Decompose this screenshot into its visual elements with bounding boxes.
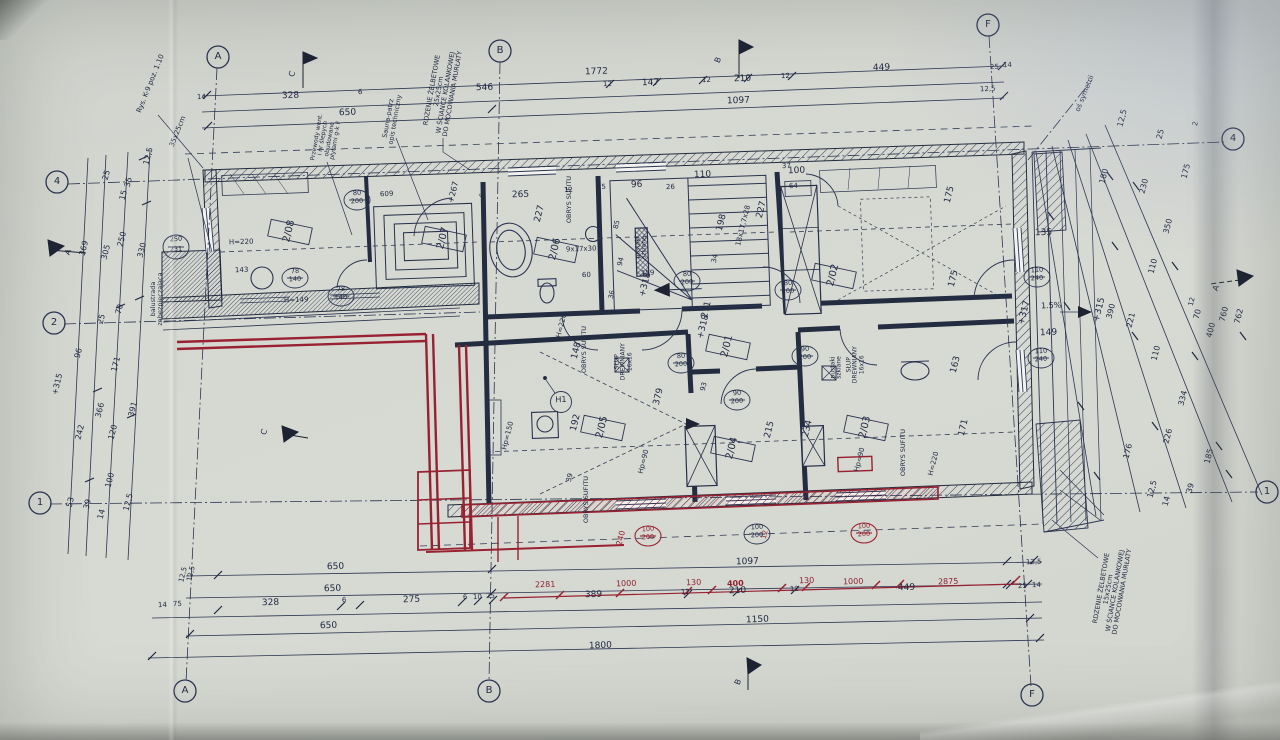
door-size-label: 200 bbox=[678, 279, 696, 287]
dim-label: 328 bbox=[262, 599, 280, 609]
window-size-label: 240 bbox=[1028, 275, 1046, 283]
dim-label: 449 bbox=[898, 584, 916, 594]
dim-label: 6 bbox=[342, 597, 347, 605]
dim-label-red: 1000 bbox=[616, 580, 637, 589]
plan-linework bbox=[0, 0, 1280, 740]
door-size-label: 140 bbox=[286, 276, 304, 284]
dim-label: 147 bbox=[642, 79, 660, 89]
sauna-benches bbox=[374, 203, 475, 288]
dim-label: 9x17x30 bbox=[566, 245, 597, 254]
door-size-label: 200 bbox=[672, 361, 690, 369]
axis-marker-4-right: 4 bbox=[1222, 133, 1244, 144]
door-size-label: 140 bbox=[332, 294, 350, 302]
axis-marker-a-top: A bbox=[207, 51, 229, 62]
dim-label: 210 bbox=[734, 75, 752, 85]
dim-label: 12 bbox=[702, 77, 711, 85]
dim-label-red: 400 bbox=[727, 580, 744, 589]
dim-label: 449 bbox=[873, 64, 891, 74]
note-ceiling-outline: OBRYS SUFITU bbox=[900, 429, 907, 476]
section-flags bbox=[48, 40, 1253, 690]
axis-marker-b-top: B bbox=[489, 45, 511, 56]
door-size-label: 200 bbox=[348, 198, 366, 206]
door-size-label: 200 bbox=[796, 354, 814, 362]
dim-label: 265 bbox=[512, 191, 530, 201]
note-wood-post: pustaki szklane bbox=[831, 347, 844, 387]
dim-label: 1772 bbox=[585, 68, 608, 79]
note-balustrada: balustrada zabezpieczająca bbox=[150, 259, 164, 339]
dim-label: 14 bbox=[158, 602, 167, 610]
dim-label: 12 bbox=[603, 81, 612, 89]
dim-label: 546 bbox=[476, 84, 494, 94]
axis-marker-b-bottom: B bbox=[478, 685, 500, 696]
axis-marker-2-left: 2 bbox=[43, 317, 65, 328]
door-ref-label: 609 bbox=[380, 191, 394, 199]
slope-label: 1.5% bbox=[1041, 302, 1062, 311]
axis-marker-a-bottom: A bbox=[174, 685, 196, 696]
dim-label: 110 bbox=[694, 171, 712, 181]
dim-label: 12 bbox=[781, 73, 790, 81]
dim-label: 1097 bbox=[727, 97, 750, 108]
window-size-label: 200 bbox=[855, 531, 873, 539]
slope-arrow-right bbox=[1078, 306, 1092, 318]
dim-label: 12,5 bbox=[980, 86, 996, 94]
axis-marker-1-left: 1 bbox=[29, 497, 51, 508]
dim-label: 96 bbox=[631, 181, 643, 191]
dim-label: 26 bbox=[666, 184, 675, 192]
dim-label: H=220 bbox=[229, 239, 254, 247]
note-ceiling-outline: OBRYS SUFITU bbox=[581, 326, 588, 373]
note-glass-blocks: pustaki szklane bbox=[636, 227, 649, 267]
window-size-label: 250 bbox=[167, 236, 185, 244]
dim-label: 389 bbox=[585, 591, 603, 601]
note-wood-post: SŁUP DREWNIANY 16x16 bbox=[614, 342, 633, 382]
dim-label-red: 130 bbox=[686, 579, 702, 588]
door-size-label: 200 bbox=[728, 398, 746, 406]
dim-label-red: 2281 bbox=[535, 581, 556, 590]
window-size-label: 200 bbox=[639, 534, 657, 542]
dim-label: 37 bbox=[782, 163, 791, 171]
note-wood-post: SŁUP DREWNIANY 16x16 bbox=[846, 345, 865, 385]
dim-label: 650 bbox=[324, 585, 342, 595]
dim-label: 12,5 bbox=[1026, 559, 1042, 567]
axis-lines bbox=[50, 36, 1258, 686]
dim-label: 64 bbox=[789, 183, 798, 191]
dim-label: 650 bbox=[327, 563, 345, 573]
dim-label-red: 1000 bbox=[843, 578, 864, 587]
dim-label: H=149 bbox=[284, 297, 309, 305]
axis-marker-4-left: 4 bbox=[46, 176, 68, 187]
axis-marker-f-bottom: F bbox=[1021, 689, 1043, 700]
door-size-label: 200 bbox=[779, 288, 797, 296]
dim-label: 135 bbox=[1035, 229, 1053, 239]
dim-label: 75 bbox=[173, 601, 182, 609]
dim-label: 143 bbox=[235, 267, 249, 275]
dim-label: 328 bbox=[282, 92, 300, 102]
dim-label: 14 bbox=[1032, 582, 1041, 590]
dim-label: 6 bbox=[358, 89, 363, 97]
dim-label: 10 bbox=[473, 594, 482, 602]
room-label-h1: H1 bbox=[551, 396, 571, 405]
dim-label: 6 bbox=[463, 594, 468, 602]
dim-label: 25 bbox=[486, 593, 495, 601]
dim-label: 149 bbox=[1040, 329, 1058, 339]
note-ceiling-outline: OBRYS SUFITU bbox=[583, 476, 590, 523]
dim-label: 275 bbox=[403, 596, 421, 606]
dim-label: 12 bbox=[790, 586, 799, 594]
axis-marker-1-right: 1 bbox=[1256, 486, 1278, 497]
dim-label: 1097 bbox=[736, 558, 759, 569]
floor-plan-sheet: A B F 4 2 1 4 1 A B F C B A A C B 2/08 2… bbox=[0, 0, 1280, 740]
red-markup bbox=[177, 334, 1020, 601]
dim-label: 1800 bbox=[589, 642, 612, 653]
dim-label: 60 bbox=[582, 272, 591, 280]
dim-label: 650 bbox=[320, 622, 338, 632]
window-size-label: 231 bbox=[167, 246, 185, 254]
dim-label: 14 bbox=[197, 94, 206, 102]
dim-label: 25 bbox=[990, 64, 999, 72]
dim-label: 25 bbox=[1018, 583, 1027, 591]
axis-marker-f-top: F bbox=[977, 19, 999, 30]
dim-label: 14 bbox=[1003, 62, 1012, 70]
dim-label: 1150 bbox=[746, 616, 769, 627]
dim-label: 12 bbox=[681, 589, 690, 597]
dim-label: 25 bbox=[597, 184, 606, 192]
dim-label-red: 2875 bbox=[938, 578, 959, 587]
terrace-right bbox=[1032, 148, 1104, 532]
note-ceiling-outline: OBRYS SUFITU bbox=[566, 176, 573, 223]
window-size-label: 240 bbox=[1032, 356, 1050, 364]
axis-circles bbox=[29, 14, 1278, 706]
dim-label-red: 130 bbox=[799, 577, 815, 586]
